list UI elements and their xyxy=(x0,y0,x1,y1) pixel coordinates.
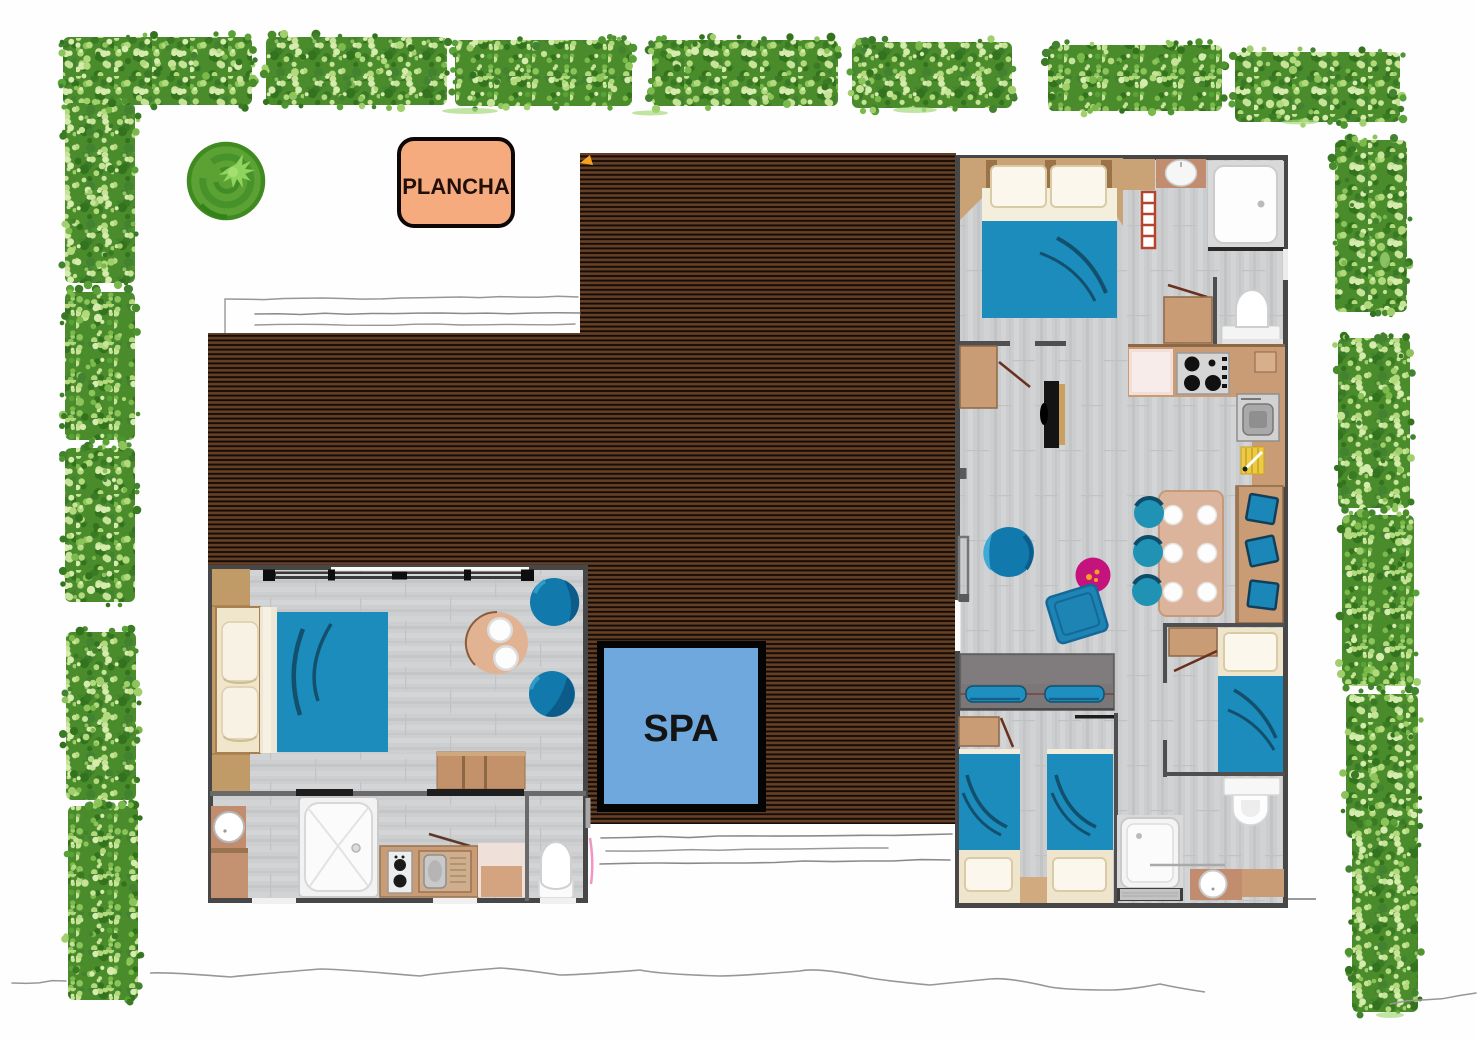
svg-text:SPA: SPA xyxy=(643,708,718,750)
svg-text:PLANCHA: PLANCHA xyxy=(402,174,510,199)
